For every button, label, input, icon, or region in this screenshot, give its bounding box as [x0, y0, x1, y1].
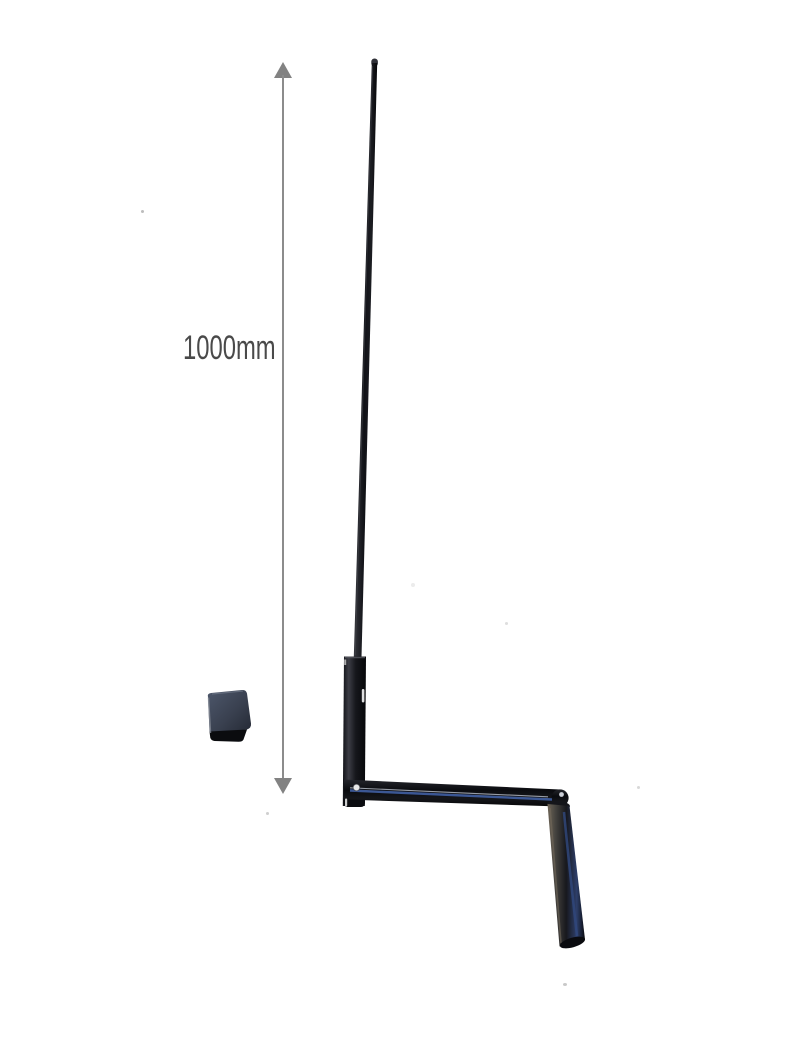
dust-speck — [411, 583, 415, 587]
dust-speck — [141, 210, 144, 213]
crank-rod — [354, 59, 378, 658]
crank-grip — [547, 800, 587, 951]
dust-speck — [563, 983, 567, 986]
dust-speck — [505, 622, 508, 625]
rivet-pin — [353, 784, 360, 791]
dust-speck — [637, 786, 640, 789]
dust-speck — [266, 812, 269, 815]
arm-end-highlight — [559, 792, 564, 797]
product-photo: 1000mm — [0, 0, 800, 1040]
rubber-cap — [208, 690, 251, 742]
crank-handle-photo — [0, 0, 800, 1040]
crank-arm — [344, 780, 569, 808]
elbow-highlight-notch — [345, 799, 347, 807]
